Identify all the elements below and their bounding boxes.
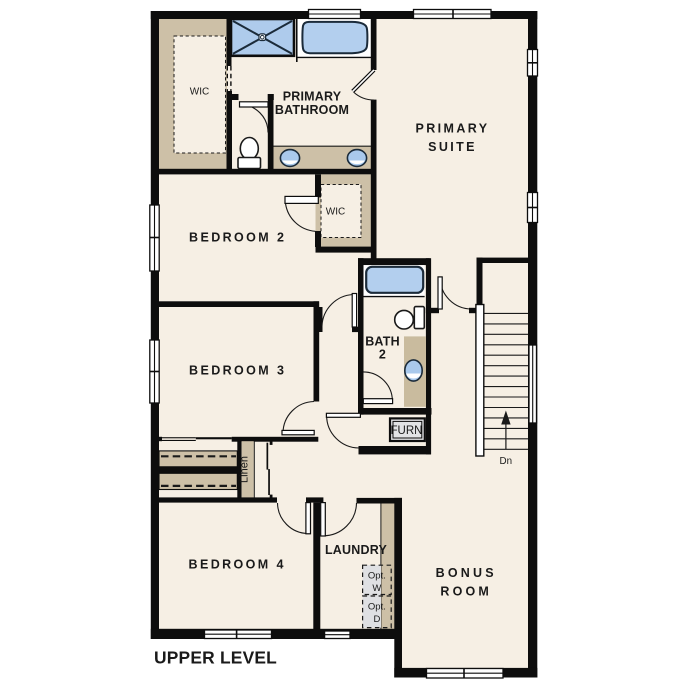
svg-text:WIC: WIC [326, 207, 345, 218]
svg-text:BEDROOM 3: BEDROOM 3 [189, 363, 286, 377]
svg-text:LAUNDRY: LAUNDRY [325, 543, 388, 557]
svg-text:SUITE: SUITE [428, 140, 477, 154]
svg-text:ROOM: ROOM [440, 585, 492, 599]
svg-text:PRIMARY: PRIMARY [416, 121, 490, 135]
svg-text:Opt.: Opt. [368, 571, 386, 582]
svg-text:WIC: WIC [190, 87, 209, 98]
svg-text:BATHROOM: BATHROOM [275, 103, 349, 117]
svg-text:BATH: BATH [365, 335, 400, 349]
svg-text:Opt.: Opt. [368, 601, 386, 612]
svg-text:BONUS: BONUS [436, 566, 497, 580]
svg-text:W: W [372, 583, 381, 594]
svg-text:2: 2 [379, 348, 386, 362]
svg-text:BEDROOM 4: BEDROOM 4 [189, 557, 286, 571]
svg-text:PRIMARY: PRIMARY [283, 90, 342, 104]
svg-text:Linen: Linen [238, 456, 250, 483]
svg-text:Dn: Dn [500, 456, 513, 467]
svg-text:UPPER LEVEL: UPPER LEVEL [154, 648, 277, 668]
svg-text:D: D [373, 614, 380, 625]
svg-text:FURN: FURN [391, 425, 423, 437]
svg-text:BEDROOM 2: BEDROOM 2 [189, 230, 286, 244]
